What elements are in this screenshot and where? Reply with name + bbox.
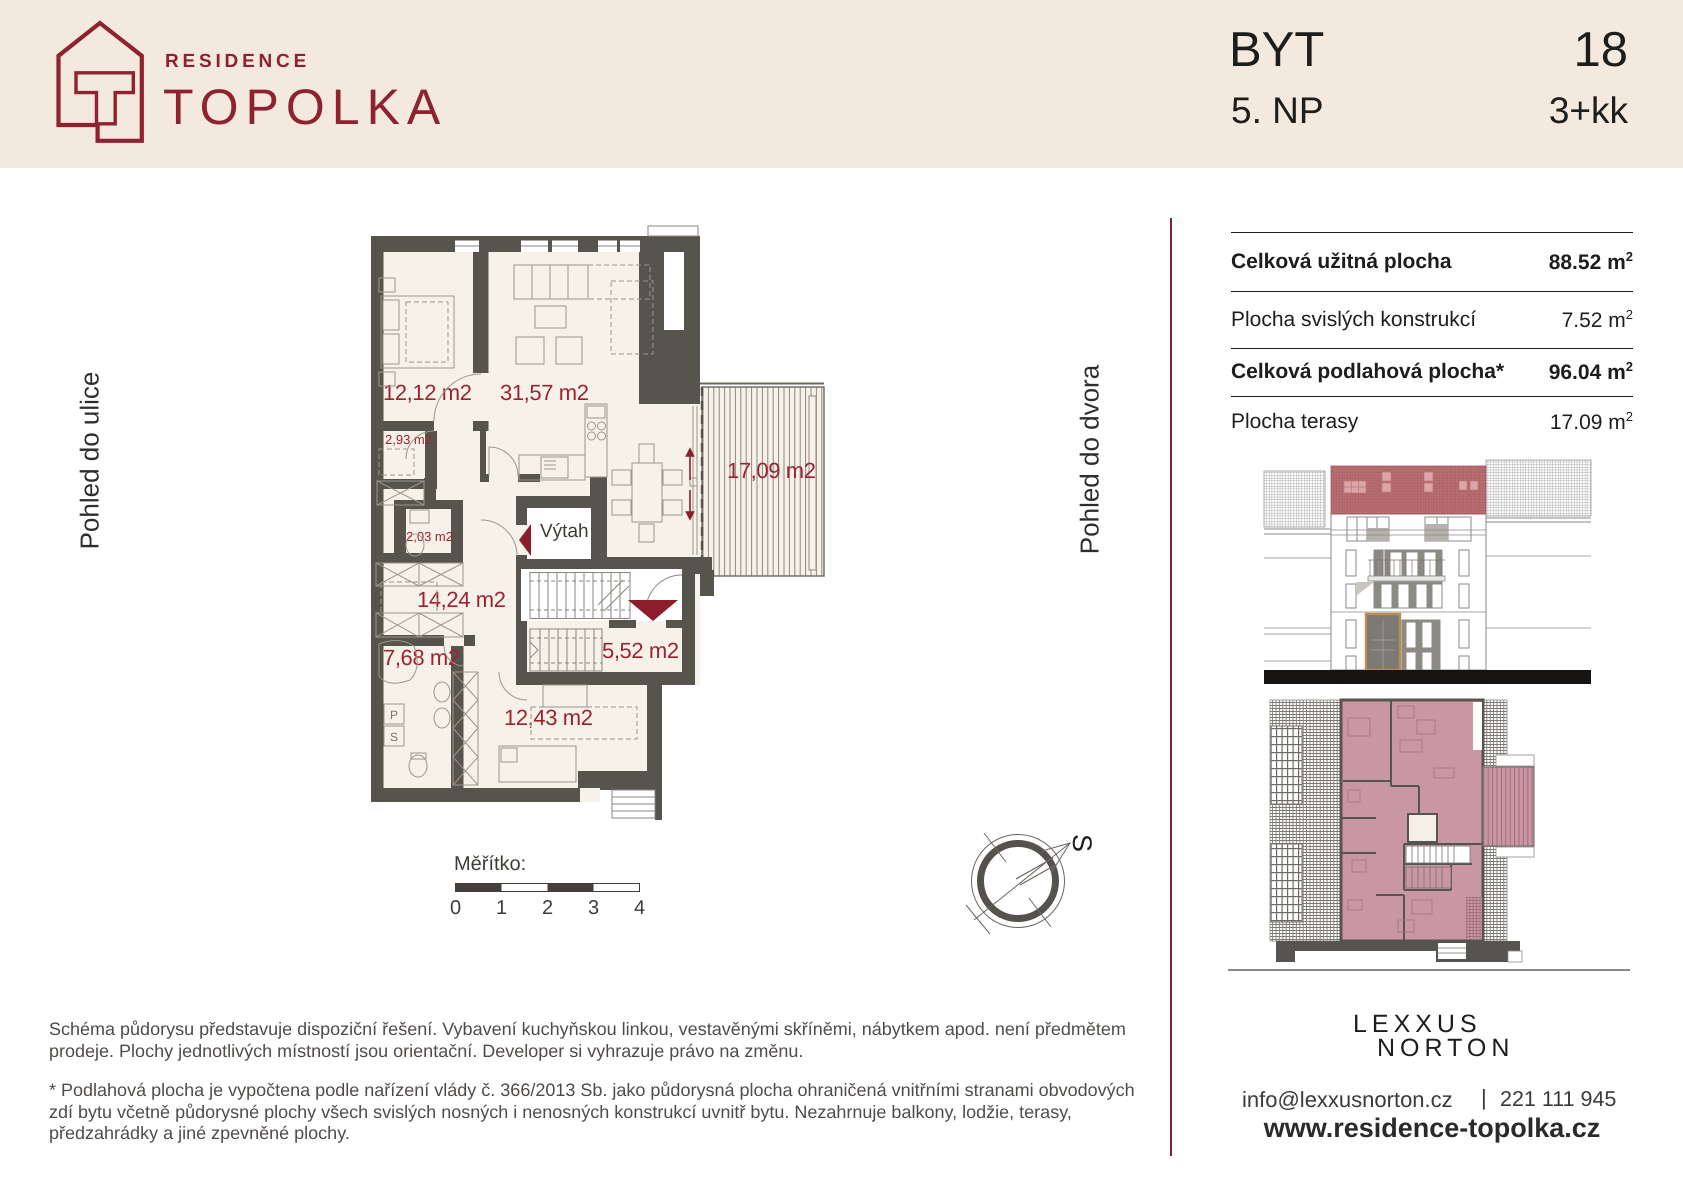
svg-text:1: 1 — [496, 897, 507, 918]
svg-text:4: 4 — [634, 897, 645, 918]
svg-text:S: S — [390, 730, 398, 744]
svg-text:3: 3 — [588, 897, 599, 918]
svg-text:S: S — [1067, 834, 1097, 852]
svg-text:7,68 m2: 7,68 m2 — [383, 645, 460, 670]
svg-text:5,52 m2: 5,52 m2 — [602, 638, 679, 663]
svg-text:2: 2 — [542, 897, 553, 918]
svg-text:2,93 m2: 2,93 m2 — [385, 432, 432, 447]
svg-text:Výtah: Výtah — [540, 521, 589, 542]
svg-text:17,09 m2: 17,09 m2 — [727, 458, 816, 483]
svg-text:P: P — [390, 708, 398, 722]
svg-text:0: 0 — [450, 897, 461, 918]
svg-text:12,43 m2: 12,43 m2 — [504, 705, 593, 730]
svg-text:2,03 m2: 2,03 m2 — [406, 529, 453, 544]
svg-text:31,57 m2: 31,57 m2 — [500, 380, 589, 405]
svg-text:12,12 m2: 12,12 m2 — [383, 380, 472, 405]
svg-text:14,24 m2: 14,24 m2 — [417, 587, 506, 612]
